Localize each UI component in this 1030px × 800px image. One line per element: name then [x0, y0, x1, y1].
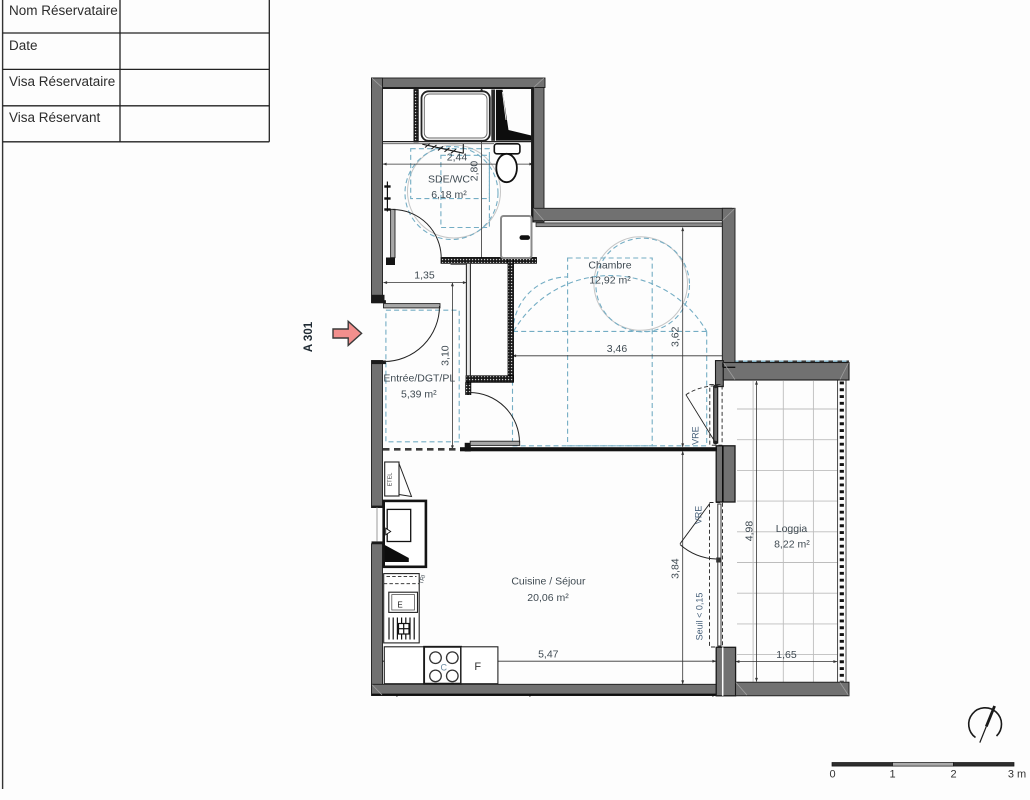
svg-text:C: C — [441, 663, 448, 673]
svg-text:5,39 m²: 5,39 m² — [401, 388, 437, 400]
svg-text:VRE: VRE — [691, 426, 701, 445]
svg-text:VRE: VRE — [694, 506, 704, 525]
svg-text:8,22 m²: 8,22 m² — [774, 538, 810, 550]
svg-text:Cuisine / Séjour: Cuisine / Séjour — [511, 575, 586, 587]
svg-text:1,65: 1,65 — [776, 649, 797, 661]
svg-text:Chambre: Chambre — [588, 260, 631, 272]
svg-text:3,62: 3,62 — [670, 326, 682, 347]
svg-text:F: F — [474, 661, 481, 673]
svg-text:SDE/WC: SDE/WC — [428, 174, 470, 186]
svg-text:Entrée/DGT/PL: Entrée/DGT/PL — [383, 372, 455, 384]
svg-text:3,10: 3,10 — [440, 345, 452, 366]
svg-text:1: 1 — [889, 769, 895, 781]
svg-text:4,98: 4,98 — [744, 521, 756, 542]
svg-text:3 m: 3 m — [1008, 769, 1026, 781]
svg-text:5,47: 5,47 — [538, 649, 559, 661]
svg-text:Visa Réservataire: Visa Réservataire — [9, 74, 115, 89]
svg-text:Nom Réservataire: Nom Réservataire — [9, 3, 118, 18]
svg-text:6,18 m²: 6,18 m² — [431, 189, 467, 201]
svg-text:Loggia: Loggia — [776, 523, 808, 535]
svg-text:E: E — [397, 601, 402, 610]
svg-text:2,44: 2,44 — [447, 152, 468, 164]
svg-text:20,06 m²: 20,06 m² — [527, 592, 569, 604]
svg-text:ETEL: ETEL — [388, 473, 394, 487]
svg-text:Date: Date — [9, 38, 38, 53]
svg-text:3,84: 3,84 — [670, 558, 682, 579]
svg-text:A 301: A 301 — [303, 321, 315, 352]
svg-text:2: 2 — [950, 769, 956, 781]
svg-text:12,92 m²: 12,92 m² — [589, 275, 631, 287]
svg-text:1,35: 1,35 — [414, 270, 435, 282]
svg-text:0: 0 — [829, 769, 835, 781]
svg-text:Visa Réservant: Visa Réservant — [9, 110, 101, 125]
svg-text:2,80: 2,80 — [469, 161, 481, 182]
svg-text:3,46: 3,46 — [607, 343, 628, 355]
svg-text:Seuil < 0,15: Seuil < 0,15 — [695, 593, 705, 641]
